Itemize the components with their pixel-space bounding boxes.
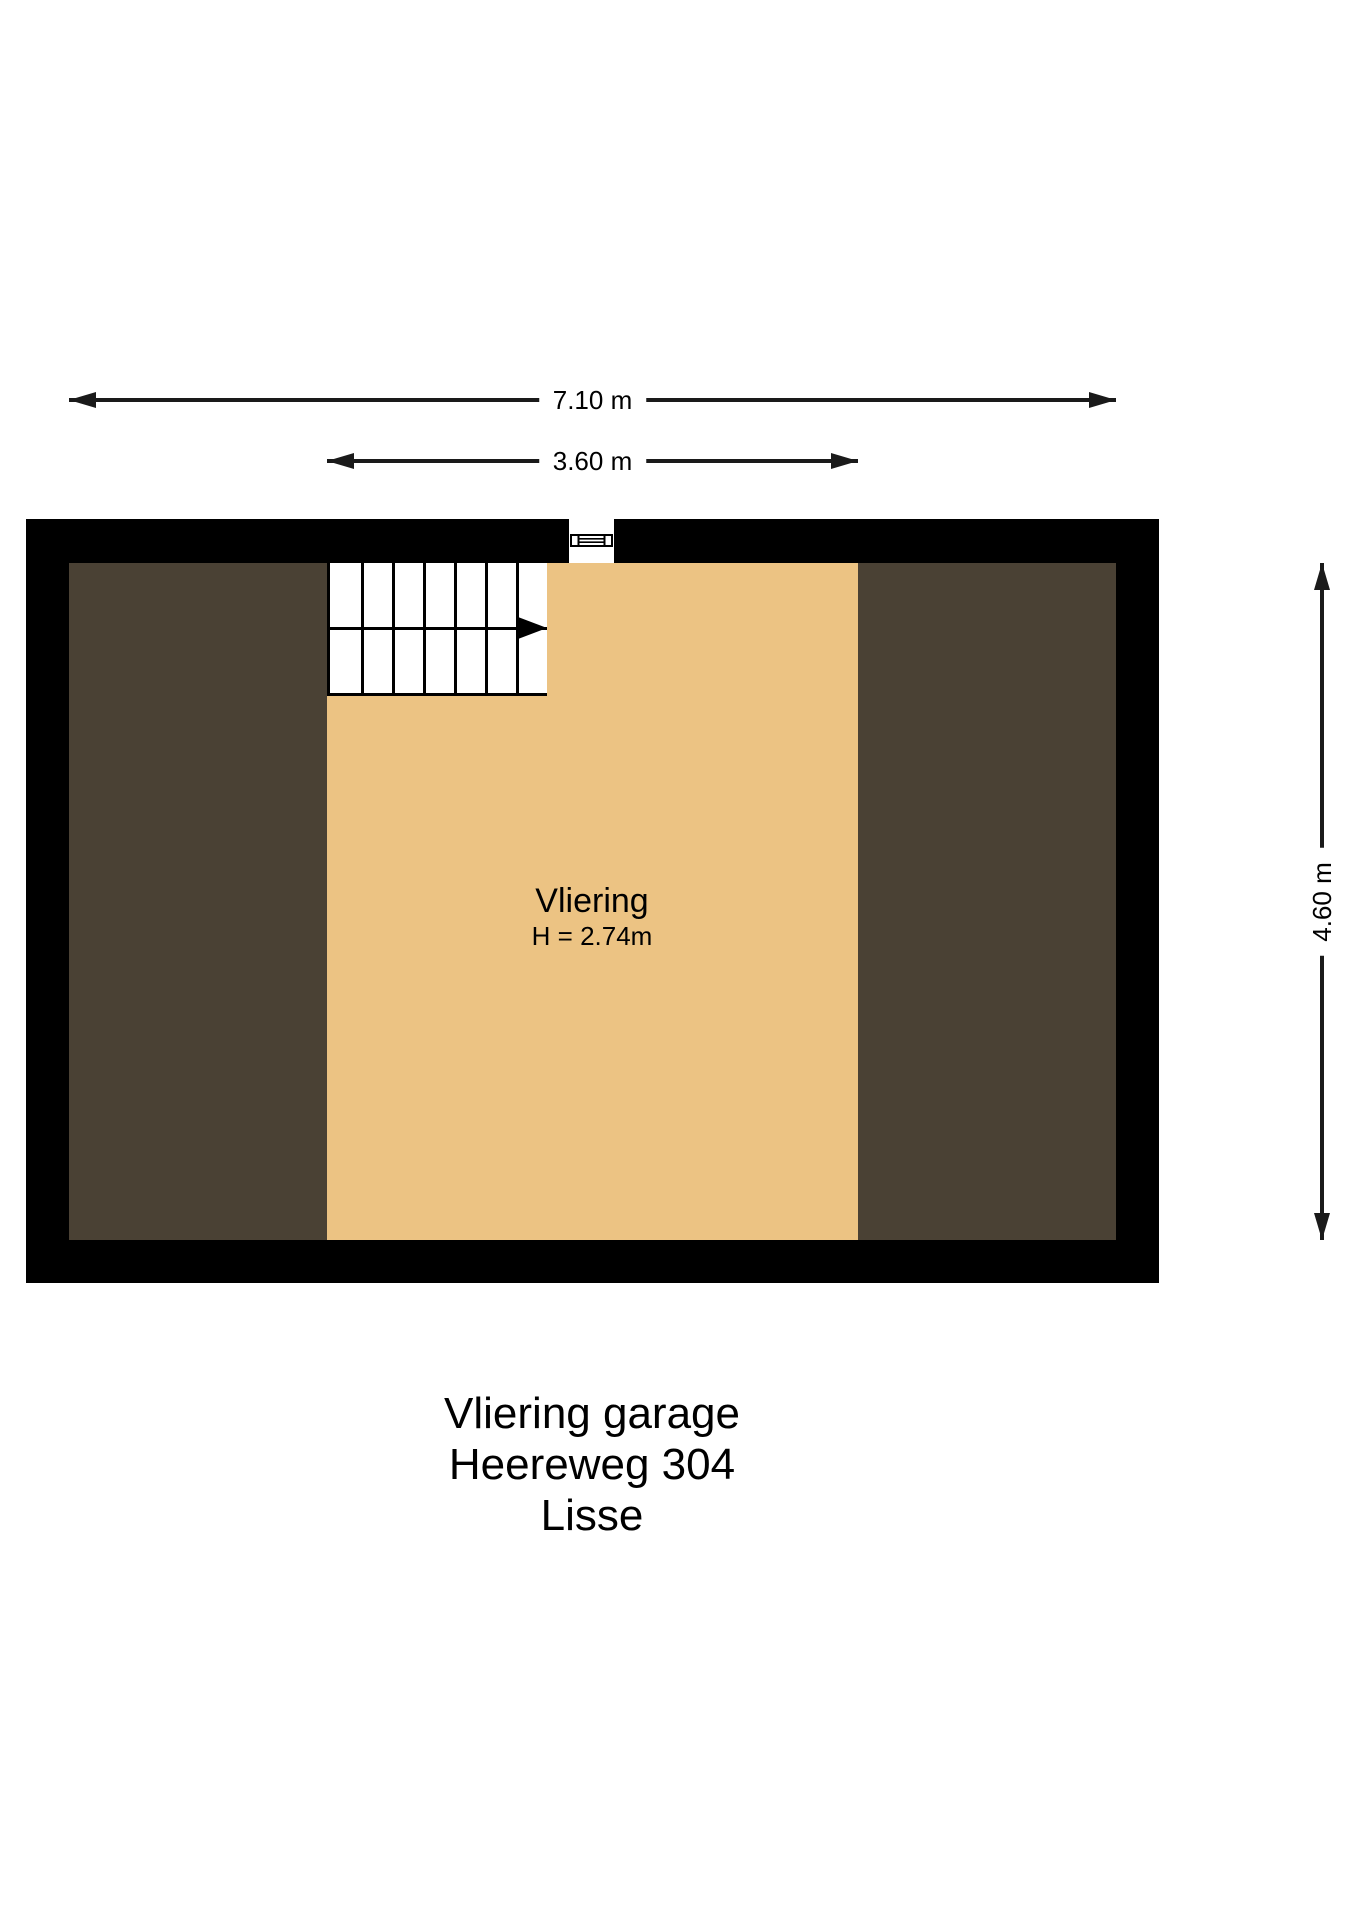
dimension-label-total-height: 4.60 m: [1307, 848, 1337, 956]
title-line-1: Vliering garage: [242, 1388, 942, 1439]
room-label: Vliering H = 2.74m: [392, 882, 792, 952]
stair-tread-line: [516, 563, 519, 693]
arrowhead-right-icon: [831, 453, 858, 469]
dimension-label-total-width: 7.10 m: [539, 385, 647, 415]
arrowhead-down-icon: [1314, 1213, 1330, 1240]
arrowhead-left-icon: [327, 453, 354, 469]
arrowhead-left-icon: [69, 392, 96, 408]
title-line-2: Heereweg 304: [242, 1439, 942, 1490]
dimension-line-total-height: 4.60 m: [1320, 563, 1324, 1240]
staircase: [327, 563, 547, 696]
floorplan-page: 7.10 m 3.60 m 4.60 m Vliering H = 2.74m …: [0, 0, 1358, 1920]
arrowhead-right-icon: [1089, 392, 1116, 408]
room-height-note: H = 2.74m: [392, 920, 792, 952]
dimension-line-room-width: 3.60 m: [327, 459, 858, 463]
stair-tread-line: [361, 563, 364, 693]
room-name: Vliering: [392, 882, 792, 920]
roof-storage-right: [858, 563, 1116, 1240]
stair-tread-line: [485, 563, 488, 693]
title-line-3: Lisse: [242, 1490, 942, 1541]
stair-tread-line: [423, 563, 426, 693]
window-icon: [570, 534, 613, 547]
stair-tread-line: [392, 563, 395, 693]
arrowhead-up-icon: [1314, 563, 1330, 590]
dimension-line-total-width: 7.10 m: [69, 398, 1116, 402]
roof-storage-left: [69, 563, 327, 1240]
stair-direction-arrow-icon: [518, 617, 547, 639]
drawing-title: Vliering garage Heereweg 304 Lisse: [242, 1388, 942, 1541]
dimension-label-room-width: 3.60 m: [539, 446, 647, 476]
stair-tread-line: [454, 563, 457, 693]
